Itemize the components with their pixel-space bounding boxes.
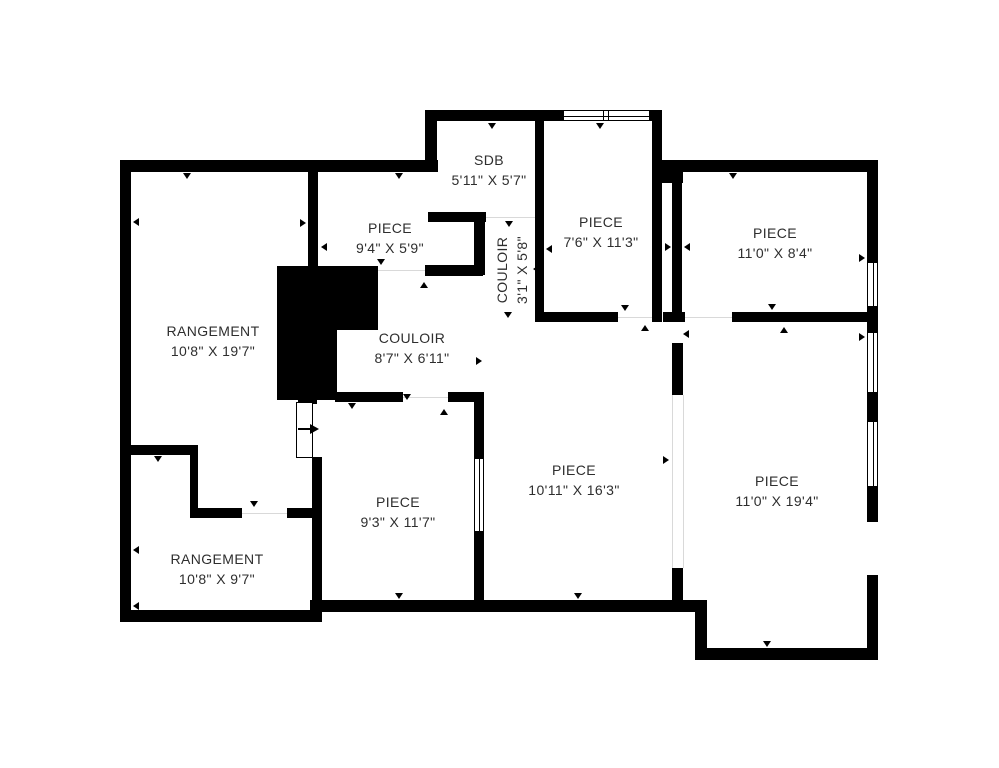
wall (652, 110, 662, 322)
room-name: PIECE (737, 223, 812, 243)
wall (312, 457, 322, 612)
window (867, 421, 878, 487)
dimension-tick (859, 333, 865, 341)
room-name: RANGEMENT (166, 321, 259, 341)
room-name: PIECE (563, 212, 638, 232)
wall (120, 445, 193, 455)
wall (732, 312, 878, 322)
dimension-tick (729, 173, 737, 179)
room-name: COULOIR (492, 236, 512, 304)
wall (335, 392, 403, 402)
wall (120, 160, 438, 172)
room-dimensions: 7'6" X 11'3" (563, 232, 638, 252)
window (867, 332, 878, 393)
dimension-tick (476, 357, 482, 365)
dimension-tick (133, 602, 139, 610)
wall (308, 170, 318, 268)
dimension-tick (663, 456, 669, 464)
room-name: PIECE (356, 218, 424, 238)
room-label: PIECE11'0" X 8'4" (737, 223, 812, 263)
wall (535, 118, 544, 322)
room-name: PIECE (735, 471, 818, 491)
door-opening-guide (378, 270, 425, 271)
room-dimensions: 9'3" X 11'7" (360, 512, 435, 532)
dimension-tick (348, 403, 356, 409)
dimension-tick (440, 409, 448, 415)
wall (474, 532, 484, 612)
room-dimensions: 11'0" X 19'4" (735, 491, 818, 511)
dimension-tick (420, 282, 428, 288)
room-name: COULOIR (374, 328, 449, 348)
window-divider (603, 111, 604, 120)
dimension-tick (133, 546, 139, 554)
room-name: PIECE (528, 460, 619, 480)
dimension-tick (596, 123, 604, 129)
window-pane-line (873, 263, 874, 306)
window (474, 458, 484, 532)
window-pane-line (564, 116, 649, 117)
wall (310, 600, 697, 612)
room-dimensions: 9'4" X 5'9" (356, 238, 424, 258)
room-label: RANGEMENT10'8" X 19'7" (166, 321, 259, 361)
room-label: PIECE9'4" X 5'9" (356, 218, 424, 258)
room-label: COULOIR3'1" X 5'8" (492, 236, 532, 304)
room-dimensions: 8'7" X 6'11" (374, 348, 449, 368)
wall (867, 393, 878, 421)
wall (658, 160, 878, 172)
dimension-tick (504, 312, 512, 318)
room-label: COULOIR8'7" X 6'11" (374, 328, 449, 368)
dimension-tick (183, 173, 191, 179)
dimension-tick (641, 325, 649, 331)
door-opening-guide (685, 317, 732, 318)
wall (190, 445, 198, 512)
window-divider (608, 111, 609, 120)
dimension-tick (665, 243, 671, 251)
dimension-tick (377, 259, 385, 265)
dimension-tick (154, 456, 162, 462)
dimension-tick (621, 305, 629, 311)
wall (543, 312, 618, 322)
window-pane-line (873, 422, 874, 486)
wall (672, 180, 682, 312)
dimension-tick (768, 304, 776, 310)
dimension-tick (250, 501, 258, 507)
dimension-tick (488, 123, 496, 129)
room-label: SDB5'11" X 5'7" (451, 150, 526, 190)
wall (663, 312, 685, 322)
wall (867, 160, 878, 262)
room-label: PIECE11'0" X 19'4" (735, 471, 818, 511)
room-dimensions: 10'8" X 19'7" (166, 341, 259, 361)
dimension-tick (403, 394, 411, 400)
room-dimensions: 10'11" X 16'3" (528, 480, 619, 500)
dimension-tick (395, 593, 403, 599)
room-label: PIECE7'6" X 11'3" (563, 212, 638, 252)
room-dimensions: 3'1" X 5'8" (512, 236, 532, 304)
room-label: PIECE9'3" X 11'7" (360, 492, 435, 532)
room-name: RANGEMENT (170, 549, 263, 569)
dimension-tick (133, 218, 139, 226)
dimension-tick (763, 641, 771, 647)
wall (867, 575, 878, 660)
room-dimensions: 11'0" X 8'4" (737, 243, 812, 263)
dimension-tick (683, 330, 689, 338)
dimension-tick (859, 254, 865, 262)
room-label: RANGEMENT10'8" X 9'7" (170, 549, 263, 589)
dimension-tick (300, 219, 306, 227)
dimension-tick (546, 245, 552, 253)
room-dimensions: 5'11" X 5'7" (451, 170, 526, 190)
door-opening-guide (683, 395, 684, 568)
door-opening-guide (242, 513, 287, 514)
room-label: PIECE10'11" X 16'3" (528, 460, 619, 500)
wall (695, 648, 878, 660)
window-pane-line (479, 459, 480, 531)
structural-mass (277, 330, 337, 400)
dimension-tick (574, 593, 582, 599)
room-name: SDB (451, 150, 526, 170)
door-opening-guide (618, 317, 652, 318)
room-dimensions: 10'8" X 9'7" (170, 569, 263, 589)
structural-mass (277, 266, 378, 330)
wall (867, 487, 878, 522)
dimension-tick (780, 327, 788, 333)
window (563, 110, 650, 121)
dimension-tick (533, 265, 539, 273)
door-opening-guide (672, 395, 673, 568)
window-pane-line (873, 333, 874, 392)
wall (120, 610, 322, 622)
wall (425, 265, 483, 276)
entrance-arrow (310, 424, 319, 434)
wall (672, 343, 683, 395)
dimension-tick (684, 243, 690, 251)
dimension-tick (395, 173, 403, 179)
wall (120, 160, 131, 622)
dimension-tick (505, 221, 513, 227)
window (867, 262, 878, 307)
wall (448, 392, 484, 402)
dimension-tick (321, 243, 327, 251)
wall (672, 568, 683, 612)
wall (190, 508, 242, 518)
door-opening-guide (486, 217, 535, 218)
room-name: PIECE (360, 492, 435, 512)
floor-plan: RANGEMENT10'8" X 19'7"PIECE9'4" X 5'9"SD… (0, 0, 999, 768)
